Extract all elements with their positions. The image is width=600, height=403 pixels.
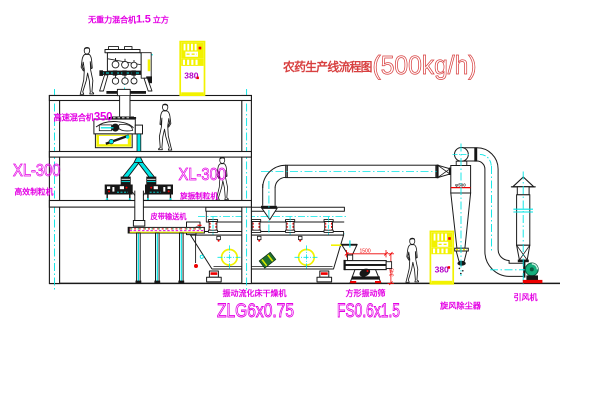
- svg-text:旋风除尘器: 旋风除尘器: [439, 300, 482, 310]
- svg-text:ZLG6x0.75: ZLG6x0.75: [217, 301, 294, 322]
- svg-text:高速混合机350: 高速混合机350: [54, 111, 113, 123]
- svg-text:高效制粒机: 高效制粒机: [15, 187, 54, 197]
- svg-text:380: 380: [435, 265, 449, 275]
- svg-text:旋振制粒机: 旋振制粒机: [179, 191, 218, 201]
- svg-text:XL-300: XL-300: [179, 164, 227, 184]
- svg-text:1500: 1500: [360, 249, 371, 255]
- svg-text:XL-300: XL-300: [13, 160, 61, 180]
- svg-text:引风机: 引风机: [514, 292, 538, 302]
- svg-text:(500kg/h): (500kg/h): [373, 52, 477, 80]
- svg-text:方形振动筛: 方形振动筛: [346, 288, 386, 298]
- svg-text:皮带输送机: 皮带输送机: [150, 212, 188, 221]
- svg-text:FS0.6x1.5: FS0.6x1.5: [337, 301, 400, 322]
- svg-text:无重力混合机1.5 立方: 无重力混合机1.5 立方: [87, 14, 169, 26]
- svg-text:345: 345: [390, 268, 396, 277]
- svg-text:农药生产线流程图: 农药生产线流程图: [282, 60, 373, 74]
- svg-text:振动流化床干燥机: 振动流化床干燥机: [223, 288, 287, 298]
